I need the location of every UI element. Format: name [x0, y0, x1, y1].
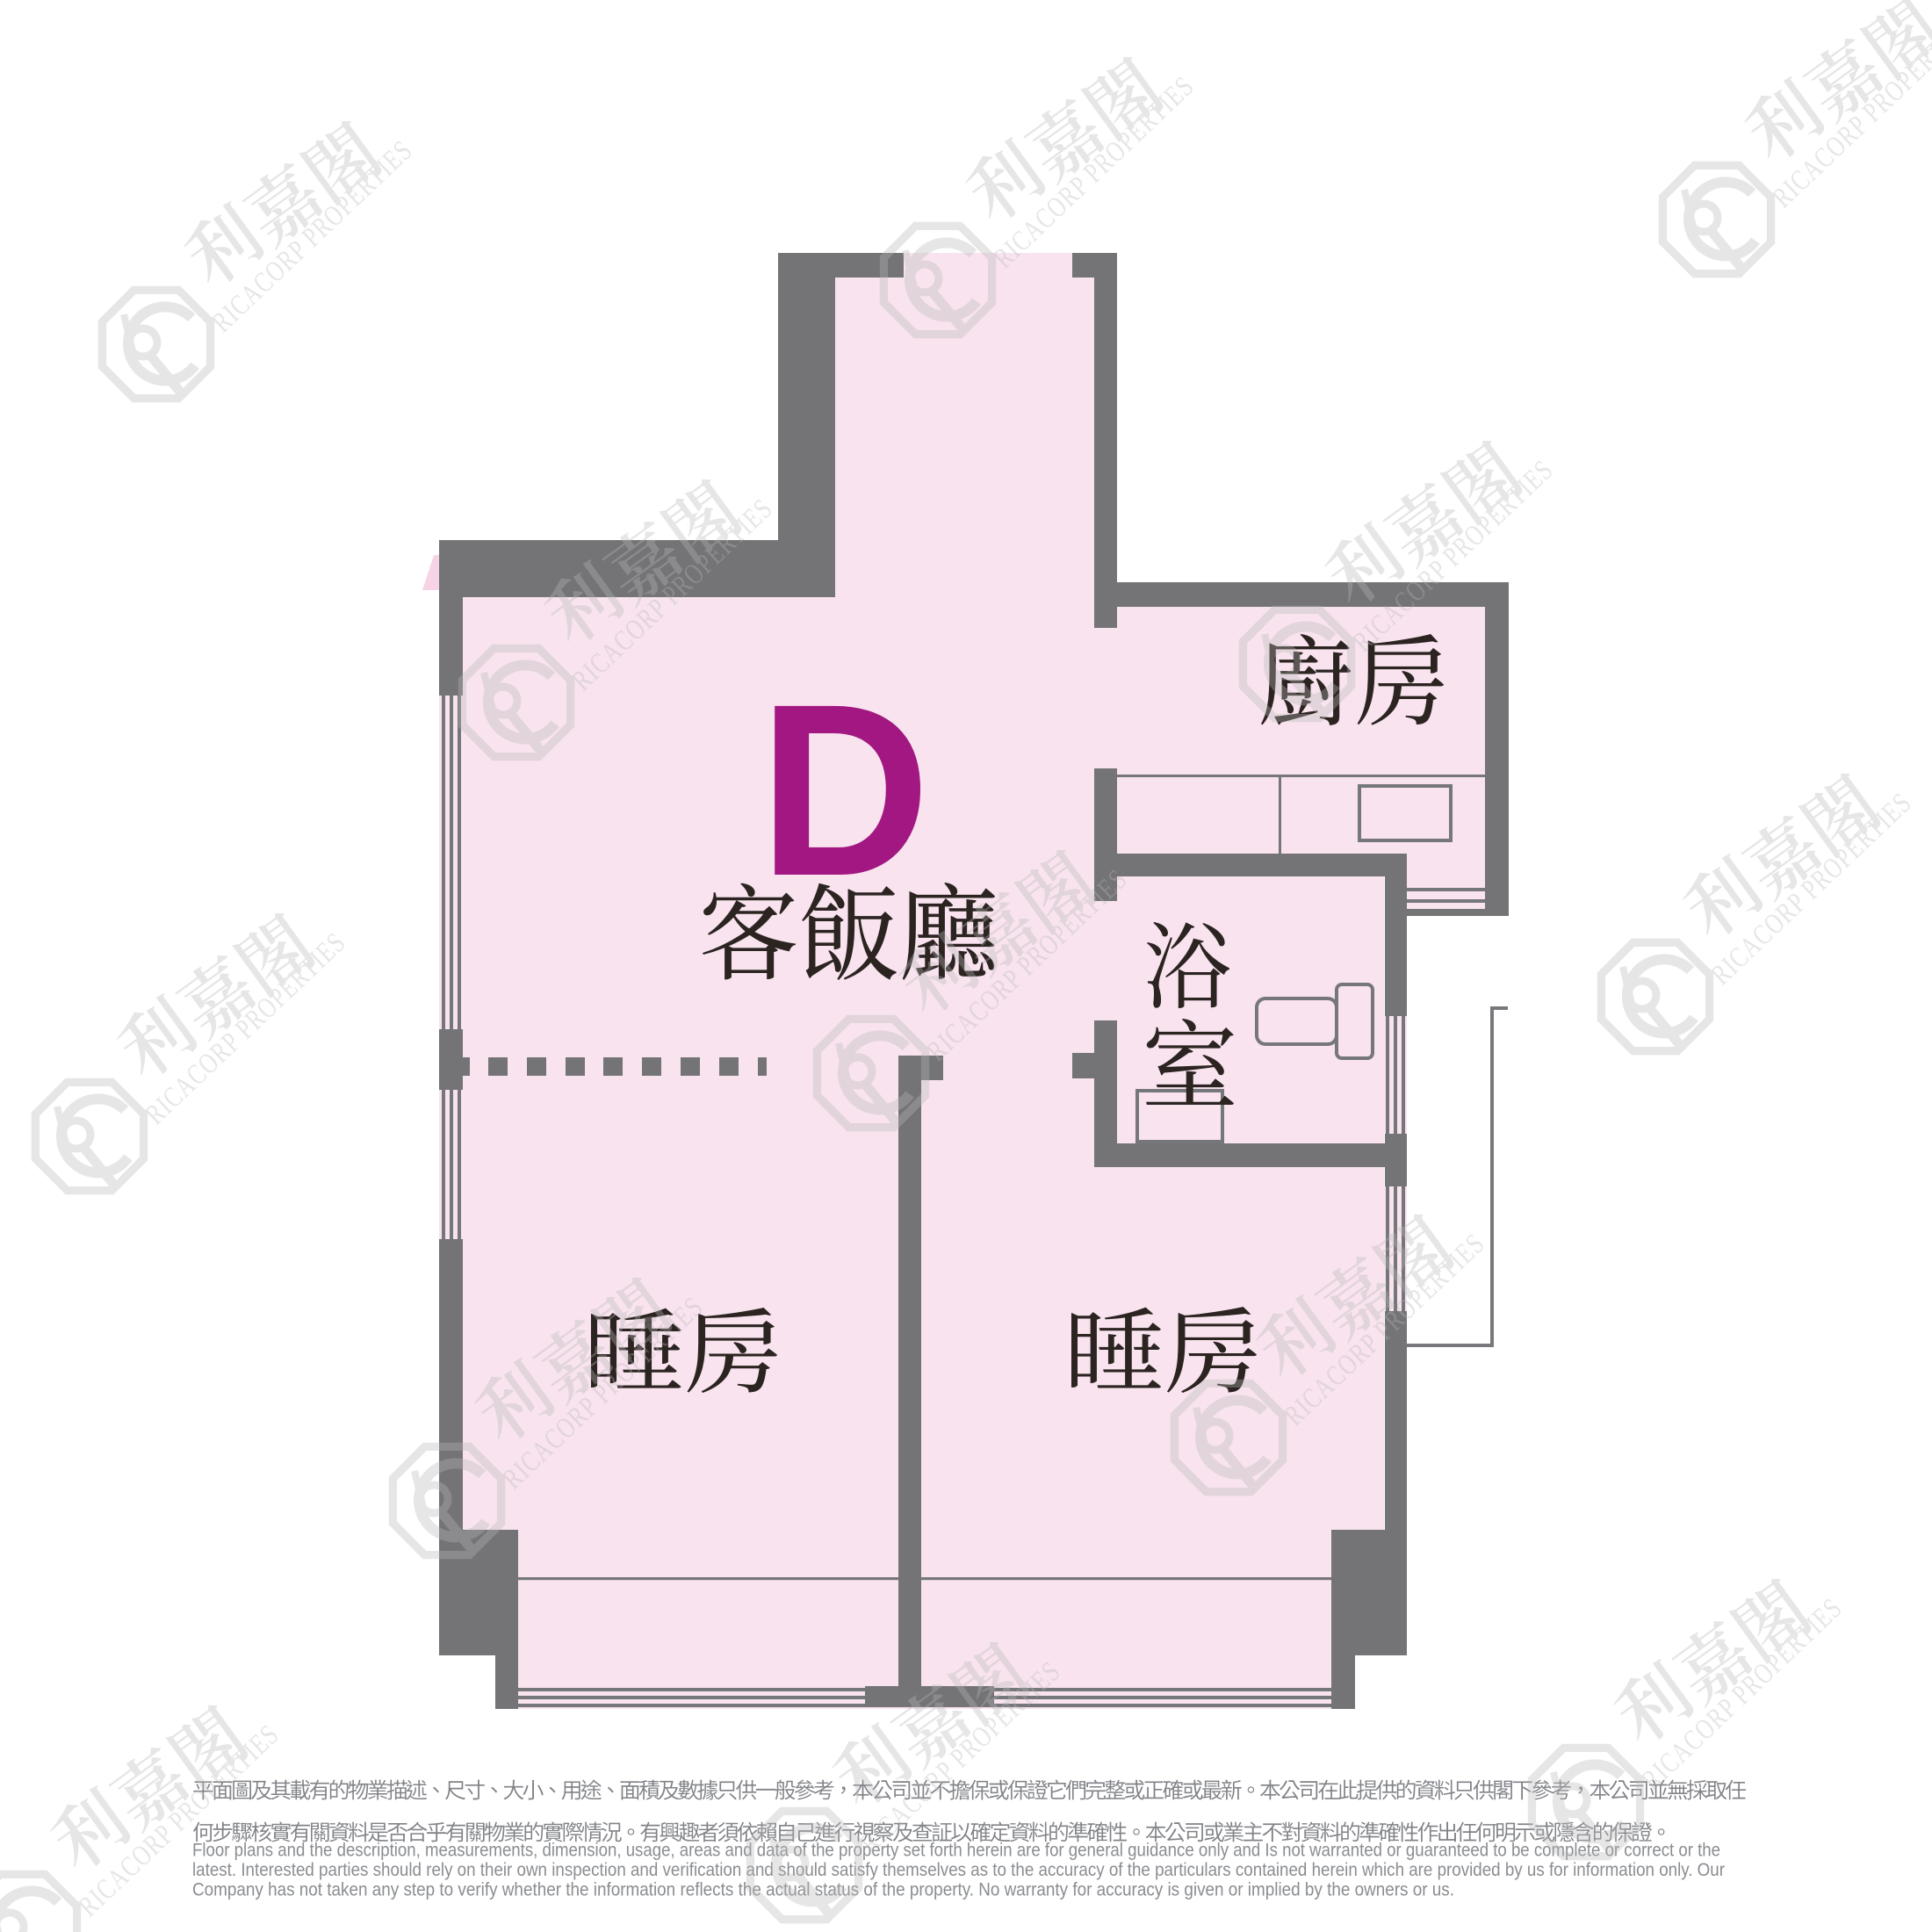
- svg-text:D: D: [759, 653, 930, 927]
- svg-text:Floor plans and the descriptio: Floor plans and the description, measure…: [192, 1841, 1720, 1861]
- svg-text:latest. Interested parties sho: latest. Interested parties should rely o…: [192, 1860, 1725, 1880]
